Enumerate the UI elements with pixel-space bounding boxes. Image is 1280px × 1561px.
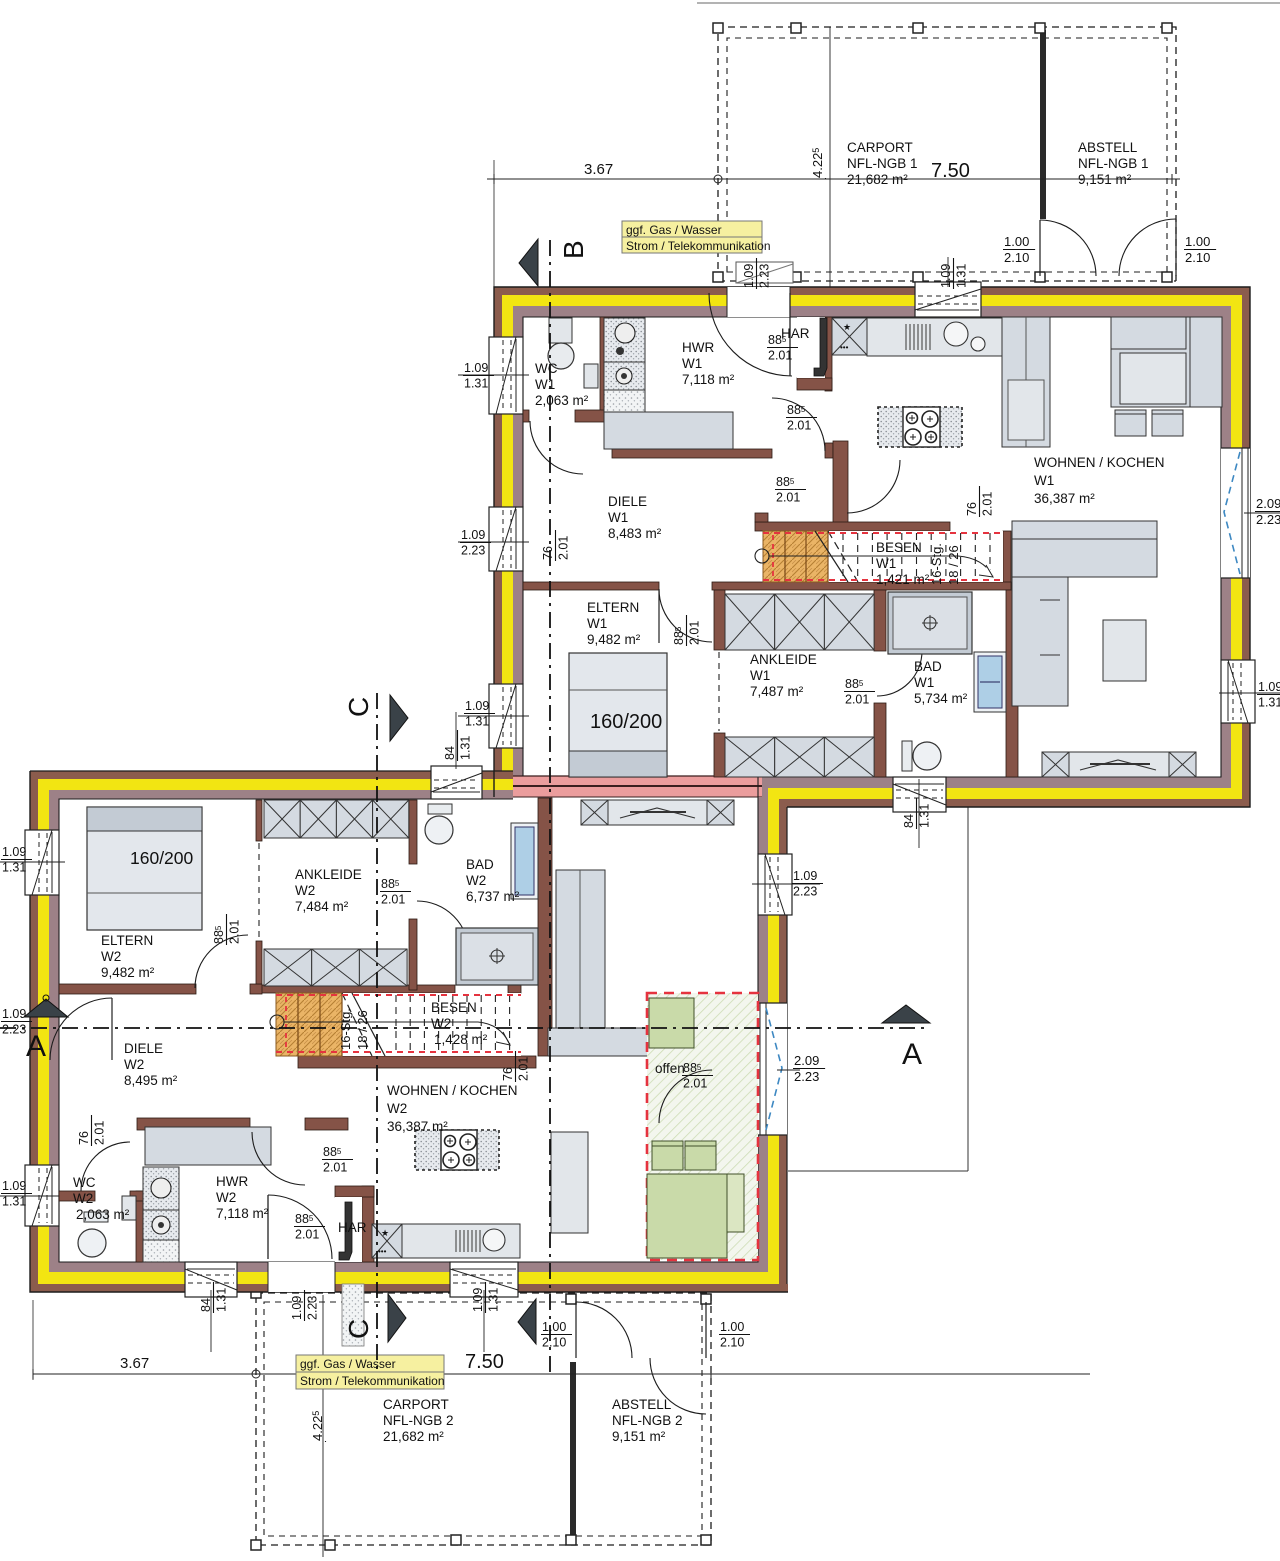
svg-text:1.31: 1.31	[486, 1288, 500, 1312]
svg-text:2.10: 2.10	[720, 1335, 744, 1349]
svg-text:B: B	[558, 240, 589, 259]
svg-text:ELTERN: ELTERN	[101, 933, 153, 948]
svg-text:7,487 m²: 7,487 m²	[750, 684, 804, 699]
svg-text:1.31: 1.31	[954, 264, 968, 288]
svg-text:DIELE: DIELE	[124, 1041, 163, 1056]
svg-text:2.01: 2.01	[92, 1121, 106, 1145]
svg-text:76: 76	[77, 1131, 91, 1145]
svg-text:1.09: 1.09	[465, 699, 489, 713]
svg-text:NFL-NGB 1: NFL-NGB 1	[847, 156, 918, 171]
svg-text:76: 76	[965, 502, 979, 516]
svg-text:2.10: 2.10	[1185, 250, 1210, 265]
svg-text:2,063 m²: 2,063 m²	[76, 1207, 130, 1222]
svg-text:1.09: 1.09	[742, 264, 756, 288]
svg-text:2.01: 2.01	[516, 1057, 530, 1081]
svg-text:1.31: 1.31	[2, 1194, 26, 1208]
svg-text:16-Stg.: 16-Stg.	[338, 1008, 353, 1050]
svg-text:HWR: HWR	[682, 340, 714, 355]
svg-text:1,421 m²: 1,421 m²	[876, 572, 930, 587]
svg-text:BESEN: BESEN	[431, 1000, 477, 1015]
svg-text:36,387 m²: 36,387 m²	[387, 1119, 448, 1134]
svg-text:2.23: 2.23	[794, 1069, 819, 1084]
svg-text:CARPORT: CARPORT	[383, 1397, 449, 1412]
svg-text:C: C	[343, 697, 374, 717]
svg-text:A: A	[26, 1030, 46, 1063]
svg-text:1,428 m²: 1,428 m²	[434, 1032, 488, 1047]
svg-text:2.01: 2.01	[381, 892, 405, 906]
svg-text:3.67: 3.67	[584, 161, 613, 178]
svg-text:2.01: 2.01	[776, 490, 800, 504]
svg-text:84: 84	[902, 814, 916, 828]
svg-text:2.01: 2.01	[295, 1227, 319, 1241]
svg-text:1.09: 1.09	[2, 1007, 26, 1021]
svg-text:2.01: 2.01	[683, 1076, 707, 1090]
svg-text:W1: W1	[587, 616, 607, 631]
svg-text:W2: W2	[295, 883, 315, 898]
svg-text:W2: W2	[73, 1191, 93, 1206]
svg-text:W1: W1	[535, 377, 555, 392]
svg-text:offen: offen	[655, 1061, 685, 1076]
svg-text:1.09: 1.09	[290, 1296, 304, 1320]
svg-text:16-Stg.: 16-Stg.	[929, 543, 944, 585]
svg-text:1.09: 1.09	[2, 845, 26, 859]
svg-text:8,483 m²: 8,483 m²	[608, 526, 662, 541]
svg-text:1.00: 1.00	[1004, 234, 1029, 249]
svg-text:HAR: HAR	[338, 1220, 367, 1235]
svg-text:W2: W2	[101, 949, 121, 964]
svg-text:6,737 m²: 6,737 m²	[466, 889, 520, 904]
svg-text:ggf. Gas / Wasser: ggf. Gas / Wasser	[300, 1357, 396, 1371]
svg-text:W1: W1	[682, 356, 702, 371]
svg-text:1.09: 1.09	[793, 869, 817, 883]
svg-text:160/200: 160/200	[590, 711, 662, 733]
svg-text:8,495 m²: 8,495 m²	[124, 1073, 178, 1088]
svg-text:1.31: 1.31	[214, 1288, 228, 1312]
svg-text:W1: W1	[608, 510, 628, 525]
svg-text:2.01: 2.01	[556, 536, 570, 560]
svg-text:DIELE: DIELE	[608, 494, 647, 509]
svg-text:ANKLEIDE: ANKLEIDE	[750, 652, 817, 667]
svg-text:21,682 m²: 21,682 m²	[383, 1429, 444, 1444]
svg-text:W2: W2	[216, 1190, 236, 1205]
svg-text:2.01: 2.01	[227, 920, 241, 944]
svg-text:★: ★	[843, 322, 851, 332]
svg-text:2.09: 2.09	[794, 1053, 819, 1068]
svg-text:7.50: 7.50	[465, 1351, 504, 1373]
svg-text:2.01: 2.01	[787, 418, 811, 432]
svg-text:5,734 m²: 5,734 m²	[914, 691, 968, 706]
svg-text:1.09: 1.09	[471, 1288, 485, 1312]
svg-text:•••: •••	[840, 343, 849, 352]
svg-text:W2: W2	[124, 1057, 144, 1072]
svg-text:ANKLEIDE: ANKLEIDE	[295, 867, 362, 882]
svg-text:2.10: 2.10	[1004, 250, 1029, 265]
svg-text:2.09: 2.09	[1256, 496, 1280, 511]
svg-text:2.01: 2.01	[768, 348, 792, 362]
svg-text:9,151 m²: 9,151 m²	[612, 1429, 666, 1444]
svg-text:ABSTELL: ABSTELL	[612, 1397, 672, 1412]
svg-text:1.09: 1.09	[461, 528, 485, 542]
svg-text:W1: W1	[1034, 473, 1054, 488]
svg-text:W2: W2	[387, 1101, 407, 1116]
svg-text:W2: W2	[466, 873, 486, 888]
svg-text:2.23: 2.23	[793, 884, 817, 898]
svg-text:1.00: 1.00	[542, 1320, 566, 1334]
svg-text:W1: W1	[876, 556, 896, 571]
svg-text:1.09: 1.09	[1258, 680, 1280, 694]
svg-text:9,482 m²: 9,482 m²	[587, 632, 641, 647]
svg-text:1.31: 1.31	[458, 736, 472, 760]
svg-text:1.09: 1.09	[939, 264, 953, 288]
svg-text:2.01: 2.01	[980, 492, 994, 516]
svg-text:WC: WC	[73, 1175, 96, 1190]
svg-text:WC: WC	[535, 361, 558, 376]
svg-text:A: A	[902, 1038, 922, 1071]
svg-text:C: C	[343, 1319, 374, 1339]
svg-text:1.09: 1.09	[2, 1179, 26, 1193]
svg-text:2,063 m²: 2,063 m²	[535, 393, 589, 408]
svg-text:18 / 26: 18 / 26	[946, 545, 961, 585]
svg-text:CARPORT: CARPORT	[847, 140, 913, 155]
svg-text:ABSTELL: ABSTELL	[1078, 140, 1138, 155]
svg-text:BESEN: BESEN	[876, 540, 922, 555]
svg-text:7,118 m²: 7,118 m²	[216, 1206, 269, 1221]
svg-text:W1: W1	[914, 675, 934, 690]
svg-text:Strom / Telekommunikation: Strom / Telekommunikation	[626, 239, 771, 253]
svg-text:9,482 m²: 9,482 m²	[101, 965, 155, 980]
svg-text:2.01: 2.01	[845, 692, 869, 706]
svg-text:1.31: 1.31	[917, 804, 931, 828]
svg-text:2.23: 2.23	[2, 1022, 26, 1036]
svg-text:W1: W1	[750, 668, 770, 683]
svg-text:3.67: 3.67	[120, 1355, 149, 1372]
svg-text:Strom / Telekommunikation: Strom / Telekommunikation	[300, 1374, 445, 1388]
svg-text:1.09: 1.09	[464, 361, 488, 375]
svg-text:76: 76	[541, 546, 555, 560]
svg-text:36,387 m²: 36,387 m²	[1034, 491, 1095, 506]
svg-text:2.23: 2.23	[305, 1296, 319, 1320]
svg-text:84: 84	[443, 746, 457, 760]
svg-text:2.23: 2.23	[1256, 512, 1280, 527]
svg-text:BAD: BAD	[914, 659, 942, 674]
svg-text:★: ★	[381, 1228, 389, 1238]
svg-text:2.10: 2.10	[542, 1335, 566, 1349]
svg-text:160/200: 160/200	[130, 848, 194, 868]
svg-text:•••: •••	[378, 1247, 387, 1256]
svg-text:1.31: 1.31	[2, 860, 26, 874]
svg-text:BAD: BAD	[466, 857, 494, 872]
svg-text:1.31: 1.31	[465, 714, 489, 728]
svg-text:2.01: 2.01	[323, 1160, 347, 1174]
svg-text:NFL-NGB 2: NFL-NGB 2	[612, 1413, 683, 1428]
svg-text:HWR: HWR	[216, 1174, 248, 1189]
svg-text:ggf. Gas / Wasser: ggf. Gas / Wasser	[626, 223, 722, 237]
svg-text:2.01: 2.01	[687, 621, 701, 645]
svg-text:2.23: 2.23	[461, 543, 485, 557]
svg-text:2.23: 2.23	[757, 264, 771, 288]
svg-text:18 / 26: 18 / 26	[355, 1010, 370, 1050]
svg-text:76: 76	[501, 1067, 515, 1081]
svg-text:7,118 m²: 7,118 m²	[682, 372, 735, 387]
svg-text:1.31: 1.31	[1258, 695, 1280, 709]
svg-text:1.00: 1.00	[1185, 234, 1210, 249]
svg-text:WOHNEN / KOCHEN: WOHNEN / KOCHEN	[1034, 455, 1165, 470]
svg-text:NFL-NGB 2: NFL-NGB 2	[383, 1413, 454, 1428]
svg-text:ELTERN: ELTERN	[587, 600, 639, 615]
svg-text:7,484 m²: 7,484 m²	[295, 899, 349, 914]
svg-text:NFL-NGB 1: NFL-NGB 1	[1078, 156, 1149, 171]
svg-text:WOHNEN / KOCHEN: WOHNEN / KOCHEN	[387, 1083, 518, 1098]
svg-text:1.00: 1.00	[720, 1320, 744, 1334]
svg-text:1.31: 1.31	[464, 376, 488, 390]
